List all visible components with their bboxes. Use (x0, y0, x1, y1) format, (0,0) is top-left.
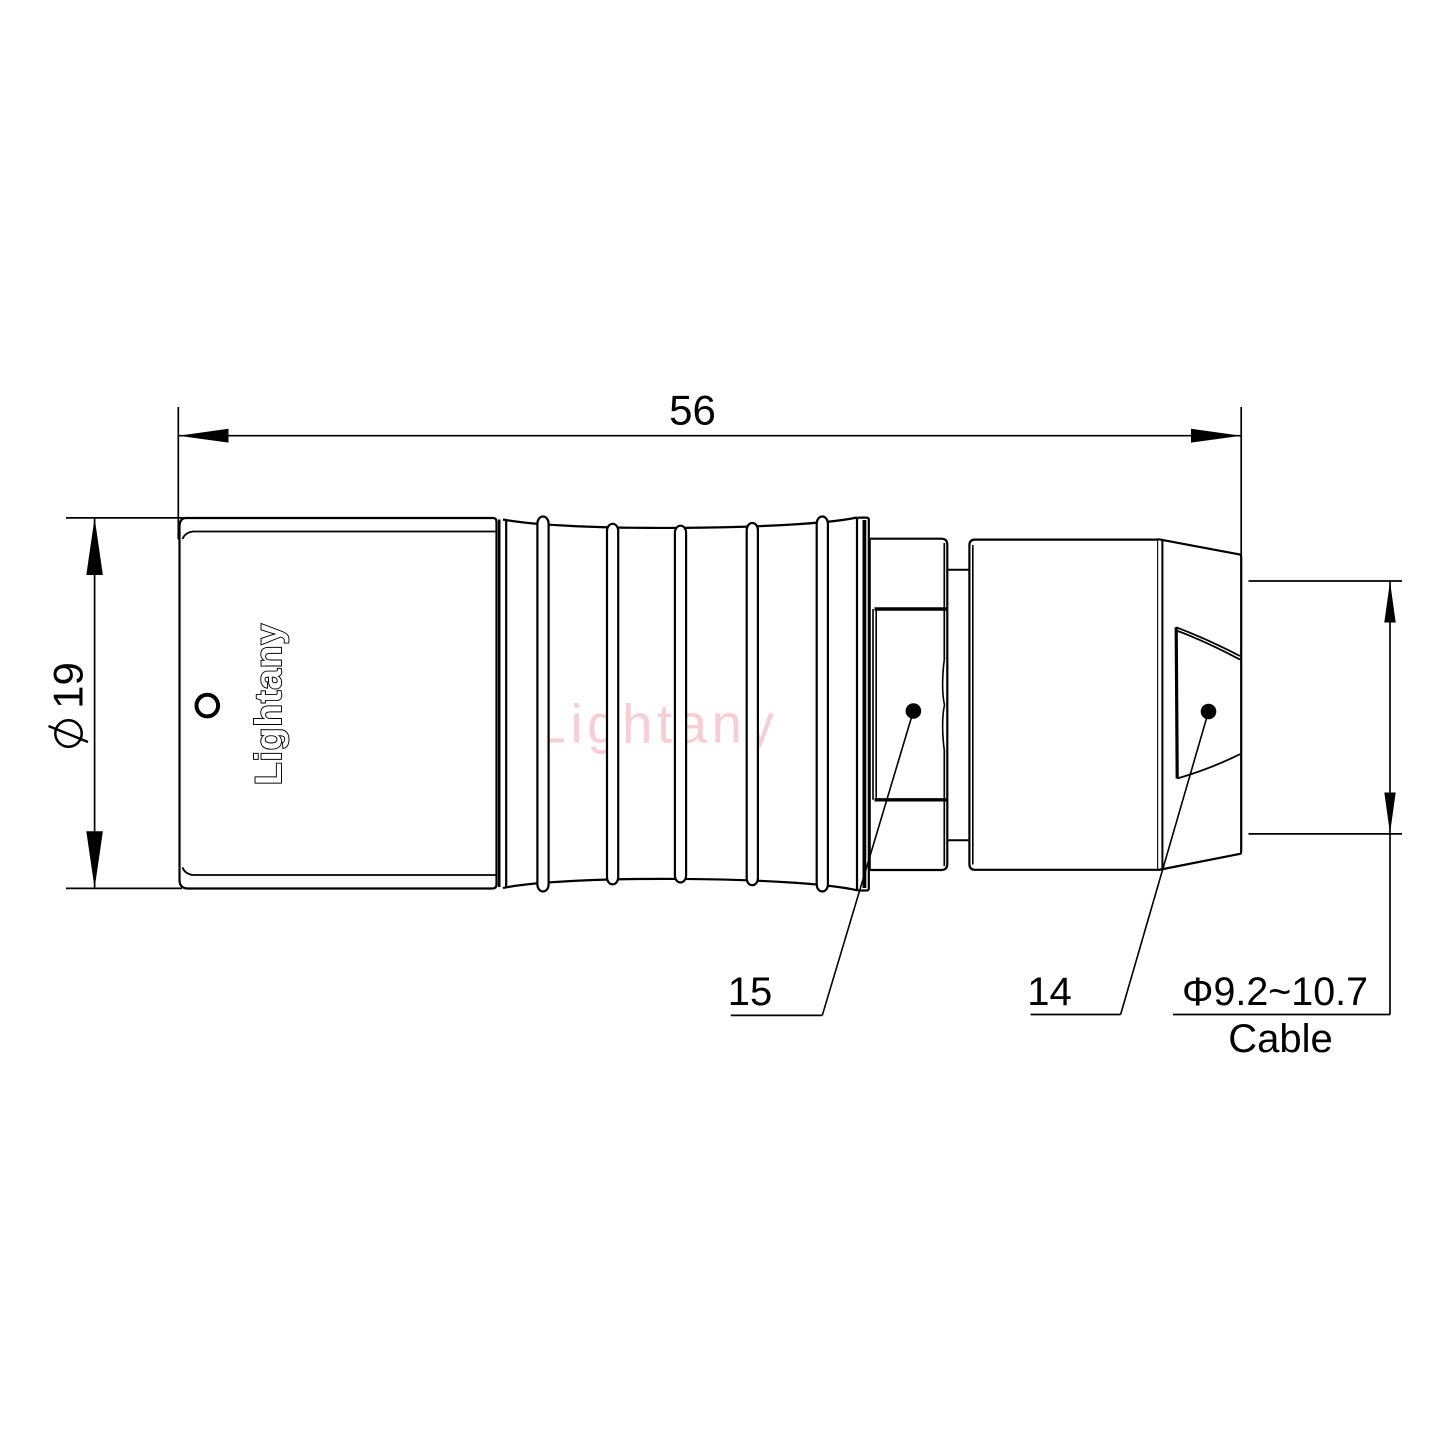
svg-text:14: 14 (1027, 970, 1072, 1014)
svg-text:Φ9.2~10.7: Φ9.2~10.7 (1182, 970, 1368, 1014)
svg-text:56: 56 (669, 387, 716, 434)
svg-text:Cable: Cable (1228, 1017, 1333, 1061)
svg-text:19: 19 (45, 662, 92, 709)
svg-text:15: 15 (728, 970, 773, 1014)
svg-text:Lightany: Lightany (536, 694, 779, 755)
svg-text:Lightany: Lightany (248, 623, 289, 785)
